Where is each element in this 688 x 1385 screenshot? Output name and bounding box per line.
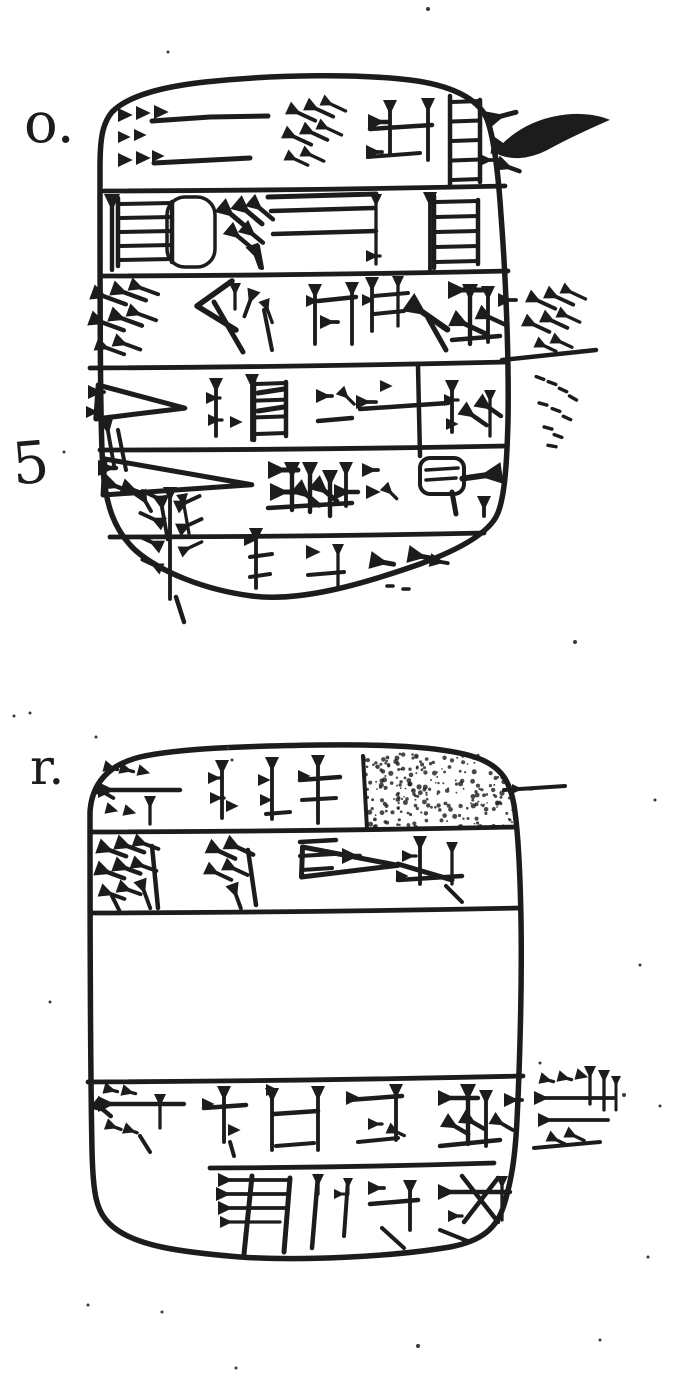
reverse-ruling — [90, 908, 520, 913]
reverse-outline — [90, 745, 521, 1259]
obverse-ruling — [90, 362, 506, 368]
obverse-tablet — [86, 76, 606, 622]
obverse-ruling — [100, 446, 506, 450]
obverse-ruling — [104, 186, 505, 191]
reverse-signs — [89, 749, 621, 1254]
obverse-signs — [86, 95, 606, 622]
reverse-ruling — [210, 1163, 494, 1168]
reverse-ruling — [90, 827, 516, 832]
tablet-hand-copy-drawing — [0, 0, 688, 1385]
obverse-ruling — [101, 271, 508, 276]
scanned-page: o. 5 r. — [0, 0, 688, 1385]
reverse-ruling — [88, 1076, 523, 1082]
reverse-tablet — [88, 745, 621, 1259]
